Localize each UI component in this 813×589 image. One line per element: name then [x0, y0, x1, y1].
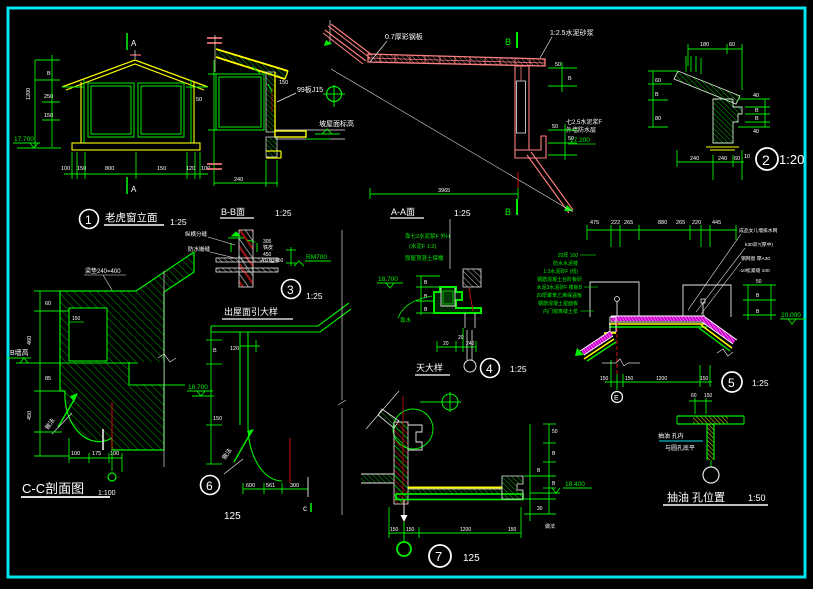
svg-text:150: 150 [700, 376, 709, 382]
svg-text:3965: 3965 [438, 188, 450, 194]
svg-text:20厚聚苯乙烯保温板: 20厚聚苯乙烯保温板 [536, 292, 582, 299]
svg-text:40: 40 [753, 129, 759, 135]
svg-text:120: 120 [186, 166, 195, 172]
svg-text:18.700: 18.700 [378, 276, 398, 283]
svg-text:靠七2水泥浆F 外H: 靠七2水泥浆F 外H [405, 232, 450, 240]
svg-text:1:25: 1:25 [275, 208, 292, 218]
svg-text:150: 150 [600, 376, 609, 382]
svg-text:800: 800 [105, 166, 114, 172]
svg-text:120: 120 [230, 346, 239, 352]
svg-text:c: c [303, 504, 307, 513]
svg-text:B: B [655, 92, 659, 98]
svg-text:B: B [505, 207, 511, 217]
svg-text:60: 60 [729, 42, 735, 48]
svg-text:B: B [47, 71, 51, 77]
svg-text:100: 100 [61, 166, 70, 172]
svg-text:180: 180 [700, 42, 709, 48]
svg-text:50: 50 [756, 279, 762, 285]
svg-text:240: 240 [718, 156, 727, 162]
svg-text:18.400: 18.400 [565, 481, 585, 488]
svg-text:1200: 1200 [26, 88, 32, 100]
svg-text:1:3水泥砂F (纽): 1:3水泥砂F (纽) [543, 268, 578, 275]
svg-text:B: B [568, 76, 572, 82]
svg-text:50: 50 [555, 62, 561, 68]
svg-text:钢网窗 厚A30: 钢网窗 厚A30 [741, 255, 770, 262]
svg-text:600: 600 [246, 483, 255, 489]
svg-text:150: 150 [213, 416, 222, 422]
svg-text:150: 150 [625, 376, 634, 382]
svg-text:(水泥F 1:2): (水泥F 1:2) [409, 242, 436, 250]
svg-text:老虎窗立面: 老虎窗立面 [105, 211, 158, 224]
svg-text:10: 10 [744, 154, 750, 160]
svg-text:A-A面: A-A面 [391, 207, 415, 217]
svg-text:50: 50 [552, 124, 558, 130]
svg-text:4: 4 [486, 362, 493, 376]
svg-text:150: 150 [72, 316, 81, 322]
svg-text:250: 250 [44, 94, 53, 100]
svg-text:B-B面: B-B面 [221, 207, 245, 217]
svg-text:50: 50 [552, 429, 558, 435]
svg-text:水泥3水泥砂F 楼板B: 水泥3水泥砂F 楼板B [536, 284, 582, 291]
svg-text:坡屋面标高: 坡屋面标高 [319, 119, 354, 128]
svg-text:抽油 孔位置: 抽油 孔位置 [667, 490, 725, 504]
svg-text:出屋面引大样: 出屋面引大样 [224, 306, 278, 317]
svg-text:抽油 孔内: 抽油 孔内 [658, 432, 684, 440]
svg-text:2: 2 [762, 152, 770, 168]
svg-text:1:25: 1:25 [752, 378, 769, 388]
svg-text:靠水: 靠水 [400, 316, 412, 324]
svg-text:175: 175 [92, 451, 101, 457]
svg-text:7: 7 [435, 549, 442, 564]
svg-text:1200: 1200 [460, 527, 471, 533]
svg-text:内门窗离缝土浆: 内门窗离缝土浆 [543, 308, 578, 315]
svg-text:20: 20 [458, 335, 464, 341]
svg-text:C-C剖面图: C-C剖面图 [22, 481, 84, 496]
svg-text:150: 150 [390, 527, 399, 533]
svg-text:B: B [755, 108, 759, 114]
svg-text:天大样: 天大样 [416, 362, 443, 373]
svg-text:60: 60 [734, 156, 740, 162]
svg-text:150: 150 [406, 527, 415, 533]
svg-text:1: 1 [85, 213, 92, 227]
svg-text:A10@450: A10@450 [261, 258, 284, 264]
svg-text:20: 20 [443, 341, 449, 347]
svg-text:265: 265 [676, 220, 685, 226]
svg-text:与圆孔底平: 与圆孔底平 [665, 444, 695, 452]
svg-text:20厚 100: 20厚 100 [558, 253, 579, 259]
svg-text:0.7厚彩钢板: 0.7厚彩钢板 [385, 32, 423, 41]
svg-text:450: 450 [27, 411, 33, 420]
svg-text:150: 150 [704, 393, 713, 399]
svg-text:30: 30 [537, 506, 543, 512]
svg-text:150: 150 [508, 527, 517, 533]
svg-text:475: 475 [590, 220, 599, 226]
svg-text:300: 300 [290, 483, 299, 489]
svg-text:1:25: 1:25 [306, 291, 323, 301]
svg-text:60: 60 [655, 78, 661, 84]
svg-text:-10松紧缝 100: -10松紧缝 100 [739, 267, 770, 274]
svg-text:60: 60 [45, 301, 51, 307]
svg-text:1:25: 1:25 [510, 364, 527, 374]
svg-text:5: 5 [728, 376, 735, 390]
svg-text:梁垫240=400: 梁垫240=400 [85, 267, 121, 275]
svg-text:240: 240 [234, 177, 243, 183]
svg-text:445: 445 [712, 220, 721, 226]
svg-text:40: 40 [753, 93, 759, 99]
svg-text:125: 125 [224, 511, 241, 522]
svg-text:钢筋混凝土台阶板砂: 钢筋混凝土台阶板砂 [537, 276, 582, 283]
svg-text:60: 60 [691, 393, 697, 399]
svg-text:防水水泥楼: 防水水泥楼 [553, 260, 578, 267]
svg-text:1200: 1200 [656, 376, 667, 382]
svg-text:222: 222 [611, 220, 620, 226]
svg-text:99板J15: 99板J15 [297, 85, 323, 94]
svg-text:150: 150 [44, 113, 53, 119]
svg-text:1:2.5水泥砂浆: 1:2.5水泥砂浆 [550, 28, 594, 37]
svg-text:880: 880 [658, 220, 667, 226]
svg-text:100: 100 [110, 451, 119, 457]
svg-text:防水嵌缝: 防水嵌缝 [188, 245, 211, 253]
svg-text:50: 50 [196, 97, 202, 103]
svg-text:1:25: 1:25 [454, 208, 471, 218]
svg-text:做法: 做法 [545, 523, 555, 530]
svg-text:240: 240 [690, 156, 699, 162]
svg-text:3: 3 [287, 283, 294, 297]
svg-text:B: B [755, 116, 759, 122]
svg-text:B: B [213, 348, 217, 354]
svg-text:A: A [131, 185, 137, 194]
svg-text:80: 80 [655, 116, 661, 122]
svg-text:B: B [505, 37, 511, 47]
svg-text:17.700: 17.700 [14, 136, 34, 143]
svg-text:成品女儿墙排水网: 成品女儿墙排水网 [739, 227, 778, 234]
svg-text:18.700: 18.700 [188, 384, 208, 391]
svg-text:20.000: 20.000 [781, 312, 801, 319]
svg-text:150: 150 [157, 166, 166, 172]
svg-text:85: 85 [45, 376, 51, 382]
svg-text:B墙高: B墙高 [10, 348, 29, 357]
svg-text:钢筋混凝土屋面板: 钢筋混凝土屋面板 [538, 300, 578, 307]
svg-text:50: 50 [568, 136, 574, 142]
svg-text:125: 125 [463, 553, 480, 564]
svg-text:厚屋顶混土保楼: 厚屋顶混土保楼 [405, 254, 444, 262]
svg-text:1:50: 1:50 [748, 493, 766, 503]
svg-text:1:20: 1:20 [779, 152, 804, 167]
svg-text:100: 100 [71, 451, 80, 457]
svg-text:150: 150 [279, 80, 288, 86]
svg-text:1:100: 1:100 [98, 490, 116, 497]
svg-text:1:25: 1:25 [170, 217, 187, 227]
svg-text:220: 220 [692, 220, 701, 226]
svg-text:铁皮: 铁皮 [263, 244, 273, 251]
svg-text:七2.5水泥浆F: 七2.5水泥浆F [566, 118, 602, 126]
svg-text:6: 6 [206, 479, 213, 493]
svg-text:A: A [131, 39, 137, 48]
svg-text:k30双?(厚中): k30双?(厚中) [745, 241, 773, 248]
svg-text:纵横分缝: 纵横分缝 [185, 230, 208, 238]
svg-text:RM700: RM700 [306, 254, 327, 261]
svg-text:460: 460 [27, 336, 33, 345]
svg-text:265: 265 [624, 220, 633, 226]
svg-text:561: 561 [266, 483, 275, 489]
svg-text:150: 150 [77, 166, 86, 172]
svg-text:E: E [614, 395, 619, 402]
